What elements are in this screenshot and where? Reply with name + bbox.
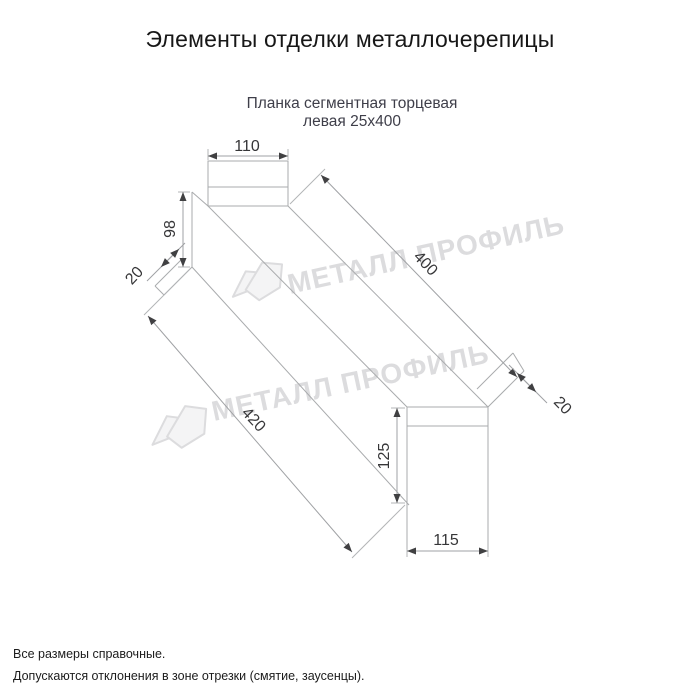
footer-note-1: Все размеры справочные. [13, 647, 165, 661]
dim-label-115: 115 [433, 532, 459, 549]
metall-profil-logo-icon [227, 259, 288, 306]
dim-label-20-right: 20 [550, 394, 575, 419]
profile-left-end [155, 192, 208, 295]
metall-profil-logo-icon [146, 402, 213, 454]
profile-top-end-section [208, 161, 288, 206]
dim-label-125: 125 [376, 443, 393, 470]
technical-drawing: МЕТАЛЛ ПРОФИЛЬ МЕТАЛЛ ПРОФИЛЬ [0, 0, 700, 700]
footer-note-2: Допускаются отклонения в зоне отрезки (с… [13, 669, 365, 683]
watermark-lower: МЕТАЛЛ ПРОФИЛЬ [146, 338, 492, 454]
dimension-left-height: 98 [162, 192, 190, 267]
dim-label-20-left: 20 [122, 264, 147, 289]
dim-label-110: 110 [234, 138, 260, 155]
dim-label-98: 98 [162, 220, 179, 238]
dimension-end-height: 125 [376, 408, 405, 503]
right-hem-edge [488, 371, 524, 407]
dimension-end-width: 115 [407, 532, 488, 557]
page: Элементы отделки металлочерепицы Планка … [0, 0, 700, 700]
dimension-top-width: 110 [208, 138, 288, 160]
dimension-right-hem: 20 [509, 365, 575, 418]
profile-bottom-end-section [407, 353, 524, 549]
left-hem-fold-line [155, 258, 183, 286]
watermark-upper: МЕТАЛЛ ПРОФИЛЬ [227, 208, 568, 305]
